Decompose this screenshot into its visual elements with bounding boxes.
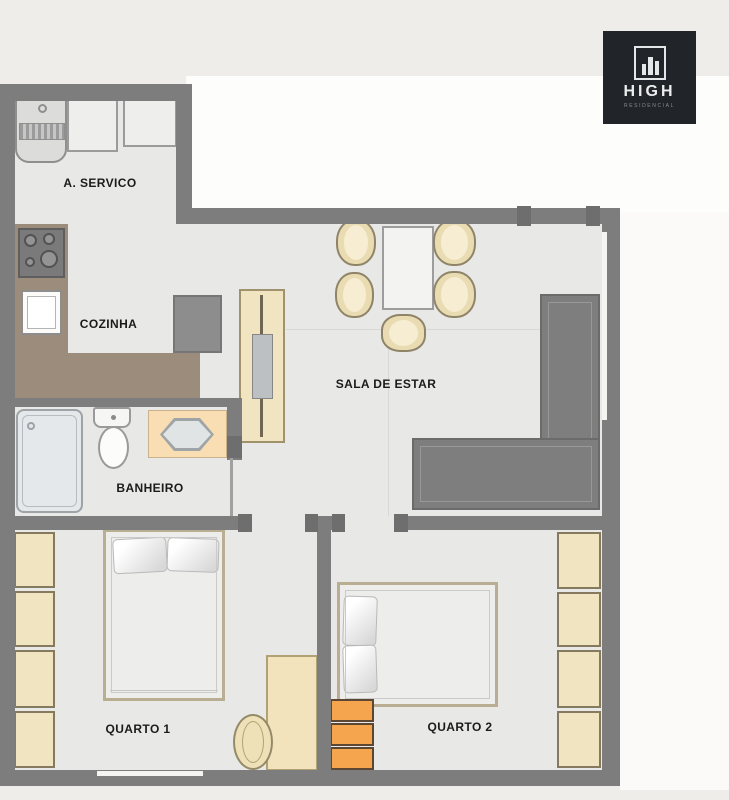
floor-line-vertical [388, 348, 389, 516]
laundry-counter-1 [67, 95, 118, 152]
door-jamb [238, 514, 252, 532]
wall [176, 208, 620, 224]
wall [0, 770, 620, 786]
building-bar [655, 61, 659, 75]
toilet-bowl [98, 426, 129, 469]
brand-logo: HIGH RESIDENCIAL [603, 31, 696, 124]
wall [0, 84, 15, 786]
toilet-flush-dot [111, 415, 116, 420]
dresser-drawer [330, 747, 374, 770]
dining-chair [433, 271, 476, 318]
pillow [112, 537, 168, 575]
room-label-kitchen: COZINHA [66, 317, 151, 331]
wardrobe-module [557, 532, 601, 589]
kitchen-sink [21, 290, 62, 335]
bathroom-door-leaf [230, 458, 233, 516]
wall [0, 84, 192, 101]
bathroom-sink-basin [163, 421, 211, 448]
pillow [342, 595, 378, 646]
kitchen-sink-basin [27, 296, 56, 329]
double-bed-bedroom2 [337, 582, 498, 707]
wall [176, 84, 192, 224]
bathroom-vanity [148, 410, 227, 458]
door-jamb [332, 514, 345, 532]
stove [18, 228, 65, 278]
dining-chair [335, 272, 374, 318]
laundry-counter-2 [123, 97, 177, 147]
shower-box [16, 409, 83, 513]
room-label-bedroom1: QUARTO 1 [88, 722, 188, 736]
desk [266, 655, 318, 771]
floorplan-canvas: A. SERVICO COZINHA SALA DE ESTAR BANHEIR… [0, 0, 729, 800]
bathroom-sink-hexagon [160, 418, 214, 451]
wardrobe-module [14, 650, 55, 708]
dining-table [382, 226, 434, 310]
dining-chair [433, 219, 476, 266]
toilet-tank [93, 407, 131, 428]
wardrobe-module [14, 711, 55, 768]
dresser-drawer [330, 723, 374, 746]
stove-burner [43, 233, 55, 245]
stove-burner [24, 234, 37, 247]
door-jamb [517, 206, 531, 226]
stove-burner [40, 250, 58, 268]
building-bar [642, 64, 646, 75]
logo-subtitle-text: RESIDENCIAL [624, 103, 675, 109]
wall [394, 516, 620, 530]
wardrobe-module [14, 591, 55, 647]
tv-sideboard [239, 289, 285, 443]
outside-area-right [620, 212, 729, 790]
desk-chair-back [242, 721, 264, 763]
kitchen-counter-horizontal [15, 353, 200, 398]
door-jamb [227, 436, 242, 458]
building-skyline-icon [634, 46, 666, 80]
wardrobe-module [557, 650, 601, 708]
window [97, 771, 203, 776]
pillow [166, 537, 219, 573]
wall [15, 398, 242, 407]
wardrobe-module [14, 532, 55, 588]
laundry-tank-washboard [19, 123, 65, 140]
door-jamb [394, 514, 408, 532]
double-bed-bedroom1 [103, 529, 225, 701]
room-label-living: SALA DE ESTAR [316, 377, 456, 391]
laundry-tank-knob [38, 104, 47, 113]
logo-brand-text: HIGH [624, 83, 676, 101]
tv [252, 334, 273, 399]
room-label-service: A. SERVICO [40, 176, 160, 190]
laundry-tank [15, 97, 67, 163]
door-jamb [586, 206, 600, 226]
building-bar [648, 57, 653, 75]
desk-chair [233, 714, 273, 770]
stove-burner [25, 257, 35, 267]
pillow [342, 644, 378, 693]
window [602, 232, 607, 420]
dining-chair [336, 219, 376, 266]
wall [317, 516, 331, 770]
door-jamb [305, 514, 318, 532]
kitchen-peninsula-cabinet [173, 295, 222, 353]
dining-chair [381, 314, 426, 352]
room-label-bedroom2: QUARTO 2 [410, 720, 510, 734]
shower-drain [27, 422, 35, 430]
dresser-drawer [330, 699, 374, 722]
room-label-bathroom: BANHEIRO [100, 481, 200, 495]
bed-foot-line [110, 690, 218, 691]
wardrobe-module [557, 592, 601, 647]
wardrobe-module [557, 711, 601, 768]
sofa-corner-horizontal [412, 438, 600, 510]
wall [0, 516, 252, 530]
